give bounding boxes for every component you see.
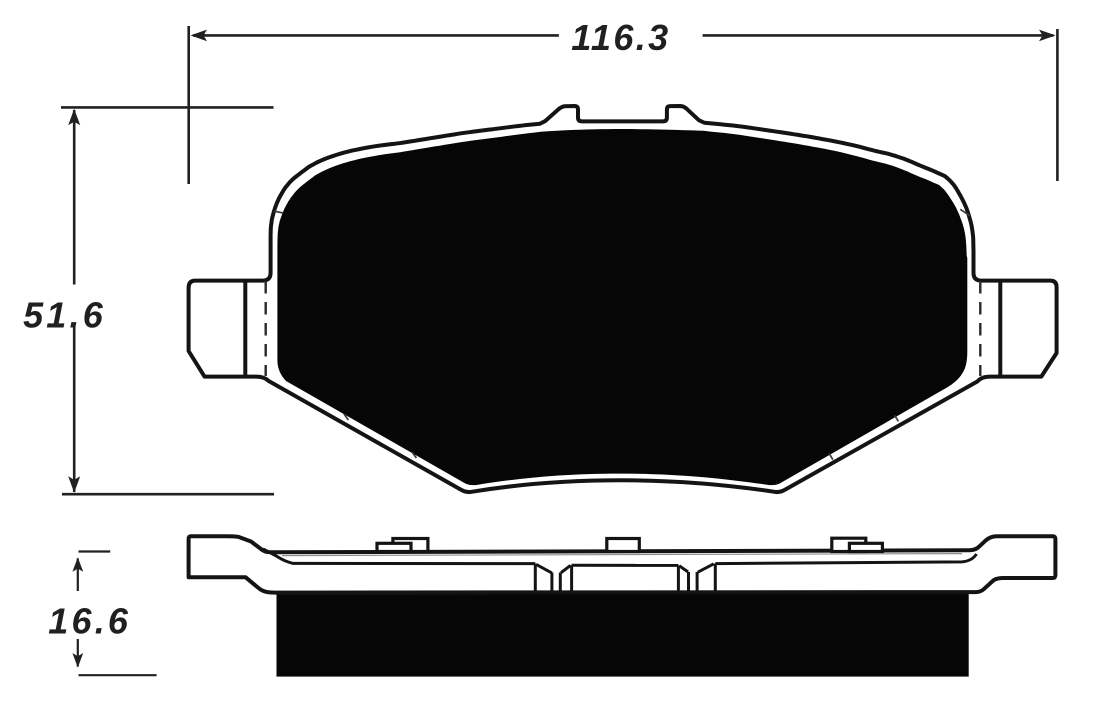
svg-text:51.6: 51.6 [23,294,106,335]
svg-text:16.6: 16.6 [48,601,131,642]
svg-text:116.3: 116.3 [571,17,670,58]
